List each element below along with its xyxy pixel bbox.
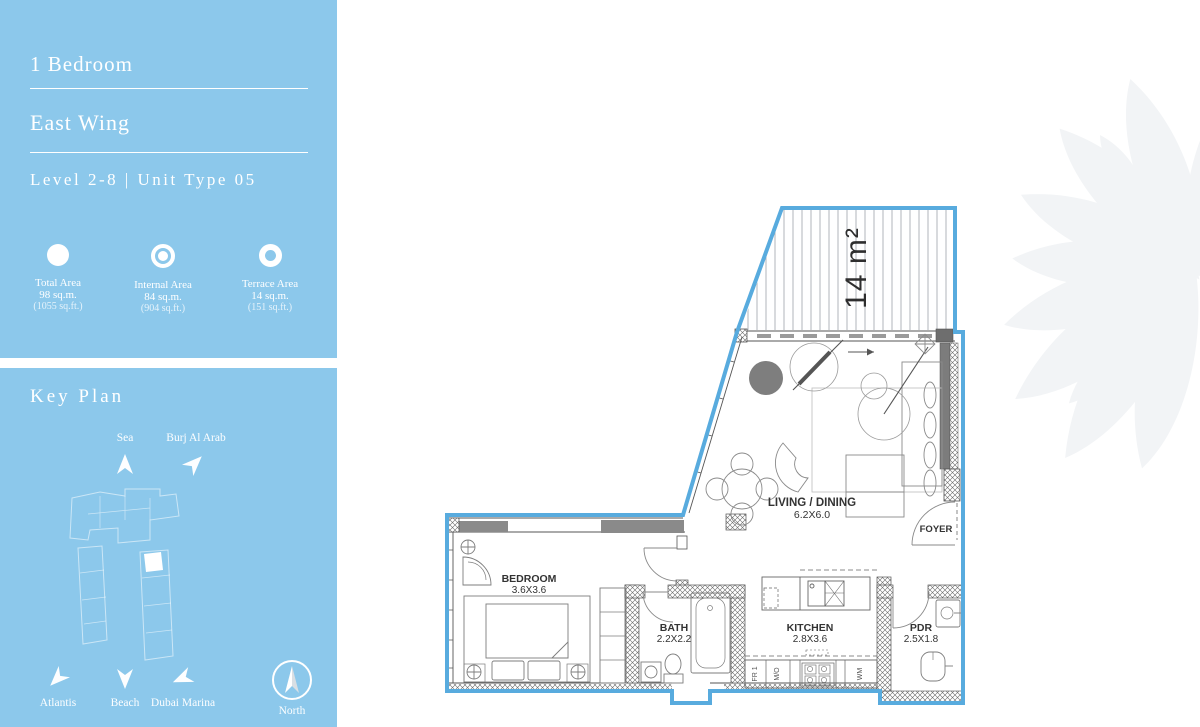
marker-atlantis-label: Atlantis <box>40 697 77 709</box>
bath-label: BATH <box>660 622 688 634</box>
page: 14 m² LIVING / DINING 6.2X6.0 FOYER BEDR… <box>0 0 1200 727</box>
pdr-label: PDR <box>910 622 933 634</box>
area-sqft: (904 sq.ft.) <box>108 303 218 315</box>
area-sqft: (1055 sq.ft.) <box>3 301 113 313</box>
marker-sea-label: Sea <box>117 432 134 444</box>
key-plan-title: Key Plan <box>30 386 124 408</box>
beach-arrow-icon <box>117 669 133 689</box>
living-label: LIVING / DINING <box>768 497 856 509</box>
foyer-label: FOYER <box>920 524 953 535</box>
kitchen-label: KITCHEN <box>787 622 834 634</box>
area-sqm: 84 sq.m. <box>108 291 218 303</box>
internal-area-icon <box>151 244 175 268</box>
terrace-area-label: 14 m² <box>840 227 873 309</box>
total-area-icon <box>47 244 69 266</box>
micro-label: M/O <box>774 667 781 681</box>
burj-arrow-icon <box>182 451 207 476</box>
dubai-marina-arrow-icon <box>170 667 195 690</box>
wing-title: East Wing <box>30 110 130 136</box>
key-plan-panel: Key Plan Sea Burj Al Arab <box>0 368 337 727</box>
bedroom-dims: 3.6X3.6 <box>512 585 547 596</box>
internal-area-block: Internal Area 84 sq.m. (904 sq.ft.) <box>108 244 218 315</box>
washer-label: WM <box>857 668 864 681</box>
atlantis-arrow-icon <box>45 666 70 691</box>
terrace-area-block: Terrace Area 14 sq.m. (151 sq.ft.) <box>215 244 325 314</box>
marker-dubai-marina-label: Dubai Marina <box>151 697 215 709</box>
pdr-dims: 2.5X1.8 <box>904 634 939 645</box>
north-compass-icon <box>273 661 311 699</box>
site-plan-sketch <box>70 489 179 660</box>
sea-arrow-icon <box>117 454 133 474</box>
level-unit-label: Level 2-8 | Unit Type 05 <box>30 170 257 190</box>
bedroom-label: BEDROOM <box>502 573 557 585</box>
area-label: Internal Area <box>108 279 218 291</box>
divider <box>30 152 308 153</box>
total-area-block: Total Area 98 sq.m. (1055 sq.ft.) <box>3 244 113 313</box>
key-plan-map: Sea Burj Al Arab Atlantis B <box>0 368 337 727</box>
area-sqm: 14 sq.m. <box>215 290 325 302</box>
terrace-area-icon <box>259 244 282 267</box>
area-label: Terrace Area <box>215 278 325 290</box>
area-label: Total Area <box>3 277 113 289</box>
bath-dims: 2.2X2.2 <box>657 634 692 645</box>
fridge-label: FR 1 <box>752 666 759 681</box>
marker-burj-label: Burj Al Arab <box>166 432 226 444</box>
info-panel: 1 Bedroom East Wing Level 2-8 | Unit Typ… <box>0 0 337 358</box>
unit-type-title: 1 Bedroom <box>30 52 133 77</box>
kitchen-dims: 2.8X3.6 <box>793 634 828 645</box>
marker-north-label: North <box>279 705 306 717</box>
unit-location-highlight <box>144 552 163 572</box>
living-dims: 6.2X6.0 <box>794 509 830 521</box>
marker-beach-label: Beach <box>111 697 140 709</box>
area-sqm: 98 sq.m. <box>3 289 113 301</box>
divider <box>30 88 308 89</box>
area-sqft: (151 sq.ft.) <box>215 302 325 314</box>
